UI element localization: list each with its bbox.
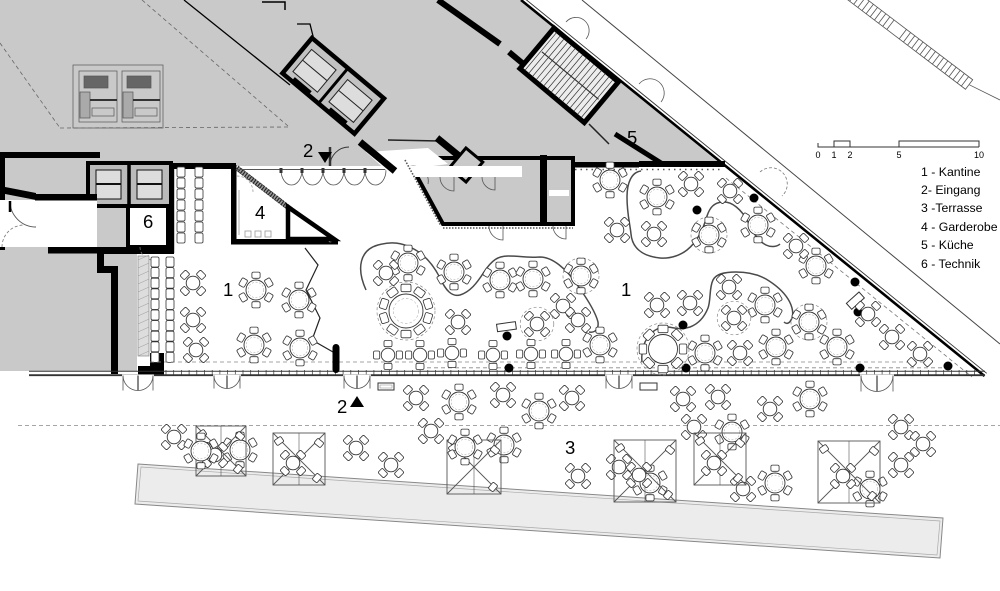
svg-text:1 - Kantine: 1 - Kantine xyxy=(921,165,981,179)
svg-text:6: 6 xyxy=(143,211,153,232)
svg-text:3: 3 xyxy=(565,437,575,458)
svg-text:1: 1 xyxy=(223,279,233,300)
svg-text:5 - Küche: 5 - Küche xyxy=(921,238,974,252)
svg-text:1: 1 xyxy=(621,279,631,300)
svg-text:3 -Terrasse: 3 -Terrasse xyxy=(921,201,983,215)
svg-text:4: 4 xyxy=(255,202,265,223)
svg-text:10: 10 xyxy=(974,150,984,160)
svg-text:2- Eingang: 2- Eingang xyxy=(921,183,981,197)
svg-text:2: 2 xyxy=(847,150,852,160)
svg-text:6 - Technik: 6 - Technik xyxy=(921,257,981,271)
svg-text:2: 2 xyxy=(303,140,313,161)
svg-text:0: 0 xyxy=(815,150,820,160)
svg-text:1: 1 xyxy=(831,150,836,160)
svg-text:5: 5 xyxy=(627,127,637,148)
svg-text:2: 2 xyxy=(337,396,347,417)
svg-text:5: 5 xyxy=(896,150,901,160)
svg-text:4 - Garderobe: 4 - Garderobe xyxy=(921,220,998,234)
